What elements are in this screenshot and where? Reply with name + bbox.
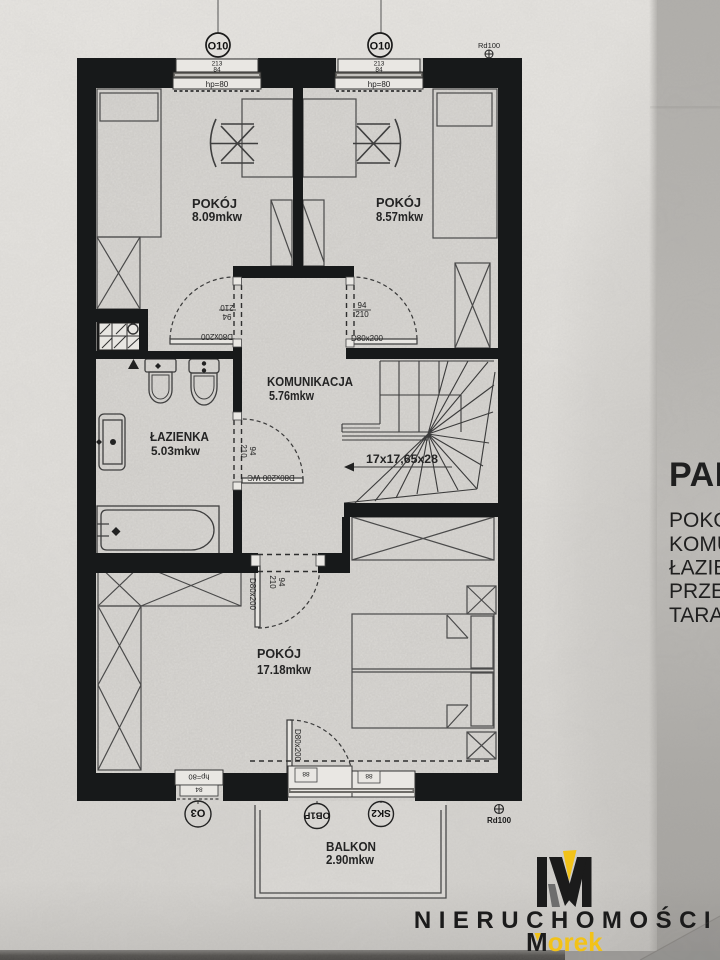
svg-text:8.57mkw: 8.57mkw — [376, 210, 423, 224]
svg-text:D80x200 WC: D80x200 WC — [247, 473, 295, 482]
svg-text:POKÓJ: POKÓJ — [376, 195, 421, 210]
svg-text:8.09mkw: 8.09mkw — [192, 210, 242, 224]
svg-text:PRZEDPOKÓJ: PRZEDPOKÓJ — [669, 580, 720, 603]
svg-text:210: 210 — [239, 444, 248, 458]
svg-text:OB1P: OB1P — [303, 810, 330, 821]
svg-text:POKÓJ: POKÓJ — [257, 646, 301, 661]
svg-text:2.90mkw: 2.90mkw — [326, 853, 374, 867]
svg-text:D80x200: D80x200 — [200, 332, 233, 341]
svg-text:17x17,65x28: 17x17,65x28 — [366, 454, 439, 466]
svg-text:PARTER: PARTER — [669, 456, 720, 494]
svg-text:Rd100: Rd100 — [487, 816, 512, 825]
svg-text:D80x200: D80x200 — [248, 578, 257, 611]
svg-text:5.76mkw: 5.76mkw — [269, 389, 314, 403]
svg-text:KOMUNIKACJA: KOMUNIKACJA — [669, 533, 720, 556]
svg-text:KOMUNIKACJA: KOMUNIKACJA — [267, 374, 354, 389]
svg-text:hp=80: hp=80 — [188, 773, 209, 782]
svg-text:94: 94 — [358, 301, 367, 310]
svg-text:210: 210 — [355, 310, 369, 319]
svg-text:17.18mkw: 17.18mkw — [257, 663, 311, 677]
svg-text:210: 210 — [220, 303, 234, 312]
svg-text:O10: O10 — [370, 41, 391, 53]
svg-text:210: 210 — [268, 575, 277, 589]
svg-text:ŁAZIENKA: ŁAZIENKA — [150, 430, 209, 444]
svg-text:O3: O3 — [191, 807, 206, 819]
svg-text:94: 94 — [277, 578, 286, 587]
svg-text:94: 94 — [222, 312, 231, 321]
svg-text:ŁAZIENKA: ŁAZIENKA — [669, 557, 720, 580]
svg-text:SK2: SK2 — [371, 807, 391, 818]
svg-text:POKÓJ: POKÓJ — [192, 196, 237, 211]
svg-text:Rd100: Rd100 — [478, 41, 500, 50]
svg-text:D80x200: D80x200 — [293, 729, 302, 762]
svg-text:94: 94 — [248, 447, 257, 456]
svg-text:POKÓJ 2: POKÓJ 2 — [669, 509, 720, 532]
svg-text:5.03mkw: 5.03mkw — [151, 444, 201, 458]
svg-text:O10: O10 — [208, 41, 229, 53]
svg-text:84: 84 — [195, 786, 203, 793]
svg-text:88: 88 — [302, 770, 310, 777]
svg-text:84: 84 — [213, 67, 221, 74]
svg-text:hp=80: hp=80 — [206, 80, 229, 89]
svg-text:84: 84 — [375, 67, 383, 74]
svg-text:88: 88 — [365, 772, 373, 779]
svg-text:BALKON: BALKON — [326, 840, 376, 854]
svg-text:Morek: Morek — [526, 927, 603, 957]
svg-text:D80x200: D80x200 — [351, 334, 384, 343]
svg-text:hp=80: hp=80 — [368, 80, 391, 89]
svg-text:TARAS: TARAS — [669, 604, 720, 627]
